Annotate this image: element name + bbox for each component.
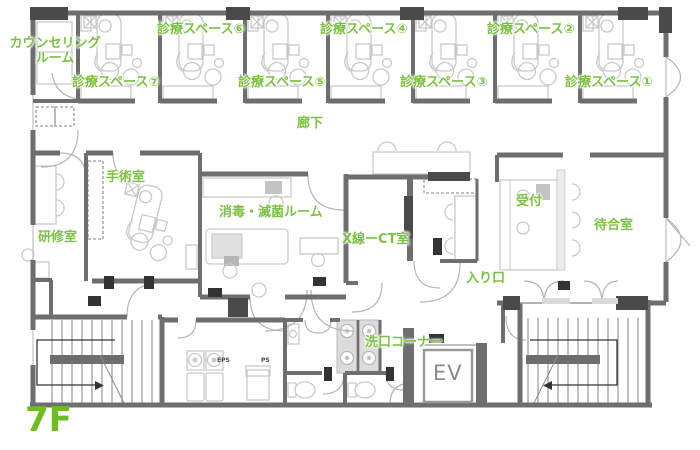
label-entrance: 入り口 xyxy=(466,272,505,287)
label-corridor: 廊下 xyxy=(297,117,323,132)
label-operating-room: 手術室 xyxy=(106,171,145,186)
wall-columns xyxy=(30,7,672,317)
entry-lockers xyxy=(36,107,74,126)
label-eps-shaft: EPS xyxy=(217,357,230,364)
corridor-desk xyxy=(373,142,470,174)
label-treatment-space-5: 診療スペース⑤ xyxy=(238,76,325,91)
operating-chair xyxy=(111,180,184,263)
toilet-sink xyxy=(288,324,299,344)
operating-dashed-cabinet xyxy=(88,161,103,239)
label-counseling-room: カウンセリング ルーム xyxy=(4,37,106,67)
ct-control-desk xyxy=(424,179,477,262)
label-elevator: EV xyxy=(433,361,463,385)
floor-number: 7F xyxy=(25,400,72,440)
label-treatment-space-2: 診療スペース② xyxy=(487,23,574,38)
furniture-layer xyxy=(22,14,644,401)
label-training-room: 研修室 xyxy=(38,231,77,246)
floor-plan-page: カウンセリング ルーム 診療スペース⑦ 診療スペース⑥ 診療スペース⑤ 診療スペ… xyxy=(0,0,700,450)
label-treatment-space-3: 診療スペース③ xyxy=(400,76,487,91)
stairs-left xyxy=(37,320,152,407)
label-rinse-corner: 洗口コーナー xyxy=(365,336,443,351)
label-xray-ct-room: X線ーCT室 xyxy=(342,233,409,248)
label-treatment-space-1: 診療スペース① xyxy=(565,76,652,91)
label-treatment-space-7: 診療スペース⑦ xyxy=(72,76,159,91)
stairs-right xyxy=(526,318,638,407)
label-ps-shaft: PS xyxy=(261,357,270,364)
training-furniture xyxy=(22,166,64,278)
label-treatment-space-4: 診療スペース④ xyxy=(320,23,407,38)
operating-cabinet xyxy=(186,245,197,269)
label-reception: 受付 xyxy=(516,195,542,210)
label-treatment-space-6: 診療スペース⑥ xyxy=(157,23,244,38)
label-waiting-room: 待合室 xyxy=(594,219,633,234)
toilet-1 xyxy=(288,382,315,398)
toilet-2 xyxy=(348,382,375,398)
reception-desk xyxy=(500,170,580,270)
label-sterilization-room: 消毒・滅菌ルーム xyxy=(219,206,323,221)
